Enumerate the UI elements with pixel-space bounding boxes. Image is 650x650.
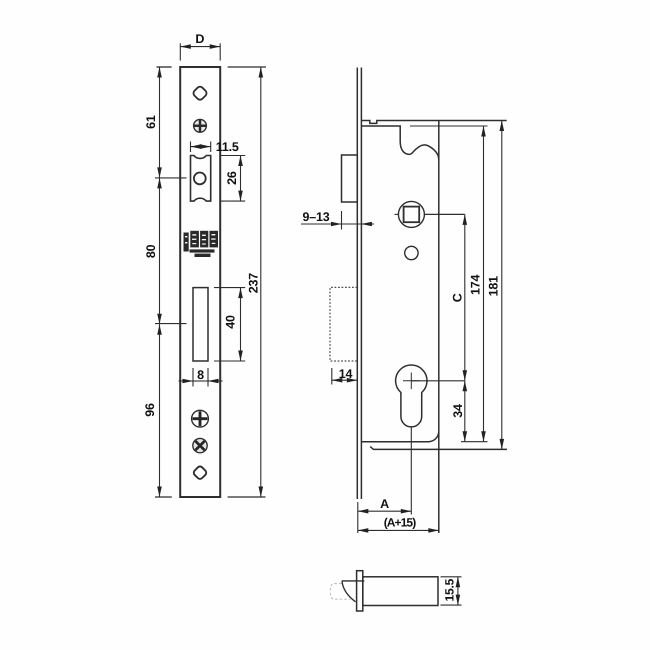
svg-text:40: 40 [224, 315, 238, 329]
svg-text:26: 26 [225, 171, 239, 185]
svg-text:61: 61 [144, 115, 158, 129]
svg-text:34: 34 [451, 404, 465, 418]
svg-text:80: 80 [144, 244, 158, 258]
svg-text:A: A [380, 497, 389, 511]
svg-text:11.5: 11.5 [216, 140, 239, 154]
svg-text:96: 96 [143, 403, 157, 417]
svg-text:8: 8 [197, 368, 204, 382]
svg-text:174: 174 [469, 275, 483, 296]
svg-text:D: D [195, 32, 204, 46]
svg-text:14: 14 [339, 367, 353, 381]
svg-text:181: 181 [487, 276, 501, 297]
svg-text:15.5: 15.5 [443, 578, 457, 601]
svg-text:(A+15): (A+15) [384, 516, 417, 530]
svg-text:9–13: 9–13 [303, 210, 330, 224]
svg-text:237: 237 [247, 273, 261, 294]
svg-text:C: C [451, 293, 465, 302]
